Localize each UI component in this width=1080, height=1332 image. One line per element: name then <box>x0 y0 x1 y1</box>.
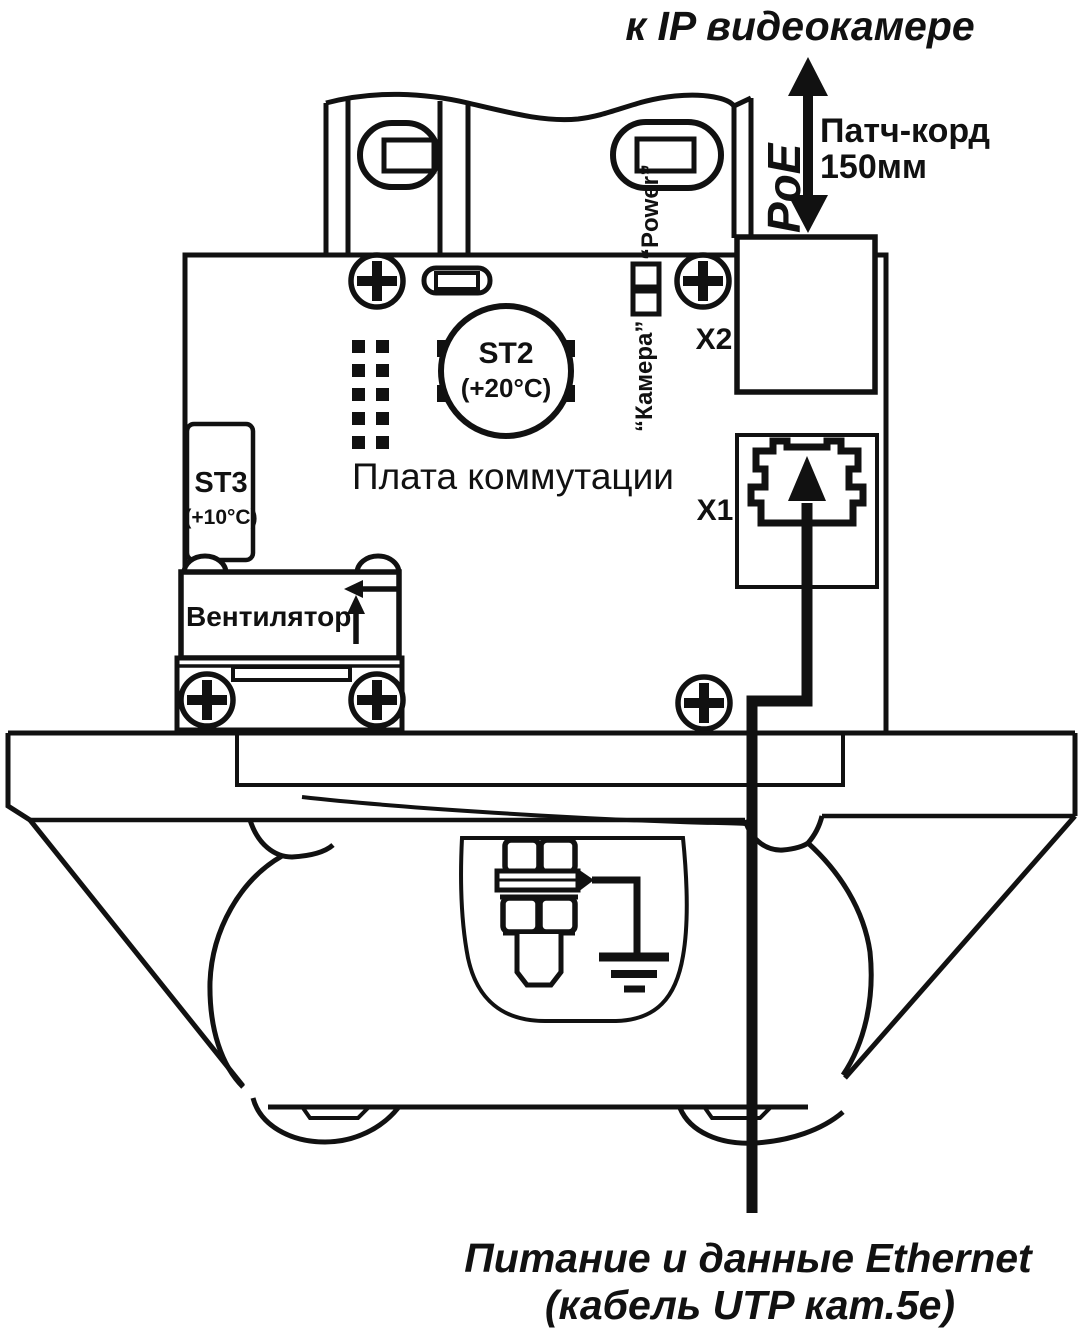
power-led-label: “Power” <box>637 164 664 260</box>
st2-label: ST2 <box>478 337 533 370</box>
patch-cord-label-line1: Патч-корд <box>820 112 990 150</box>
fan-label: Вентилятор <box>186 601 351 632</box>
screw-icon <box>677 255 729 307</box>
wiring-diagram-page: ST2 (+20°C) Плата коммутации ST3 (+10°C)… <box>0 0 1080 1332</box>
camera-bracket <box>326 94 751 256</box>
camera-led <box>633 291 659 314</box>
wiring-diagram: ST2 (+20°C) Плата коммутации ST3 (+10°C)… <box>0 0 1080 1332</box>
st2-thermostat: ST2 (+20°C) <box>437 306 575 436</box>
patch-cord-label-line2: 150мм <box>820 148 927 186</box>
bracket-slot-right <box>613 122 721 188</box>
screw-icon <box>351 674 403 726</box>
jumper <box>424 268 490 293</box>
screw-icon <box>351 255 403 307</box>
fan: Вентилятор <box>181 556 399 658</box>
screw-icon <box>678 677 730 729</box>
power-led <box>633 264 659 287</box>
x1-label: X1 <box>697 494 734 527</box>
mounting-plate <box>8 733 1075 850</box>
st2-temp: (+20°C) <box>461 373 552 403</box>
st3-temp: (+10°C) <box>184 506 257 529</box>
screw-icon <box>181 674 233 726</box>
bottom-caption-line1: Питание и данные Ethernet <box>464 1235 1034 1281</box>
camera-led-label: “Камера” <box>631 321 658 432</box>
x2-label: X2 <box>696 323 733 356</box>
board-label: Плата коммутации <box>352 456 674 497</box>
st3-label: ST3 <box>194 467 247 499</box>
bottom-caption-line2: (кабель UTP кат.5е) <box>545 1282 955 1328</box>
title-top: к IP видеокамере <box>625 3 974 49</box>
bracket-slot-left <box>360 123 438 187</box>
poe-label: PoE <box>758 142 810 233</box>
st3-thermostat: ST3 (+10°C) <box>184 424 257 560</box>
